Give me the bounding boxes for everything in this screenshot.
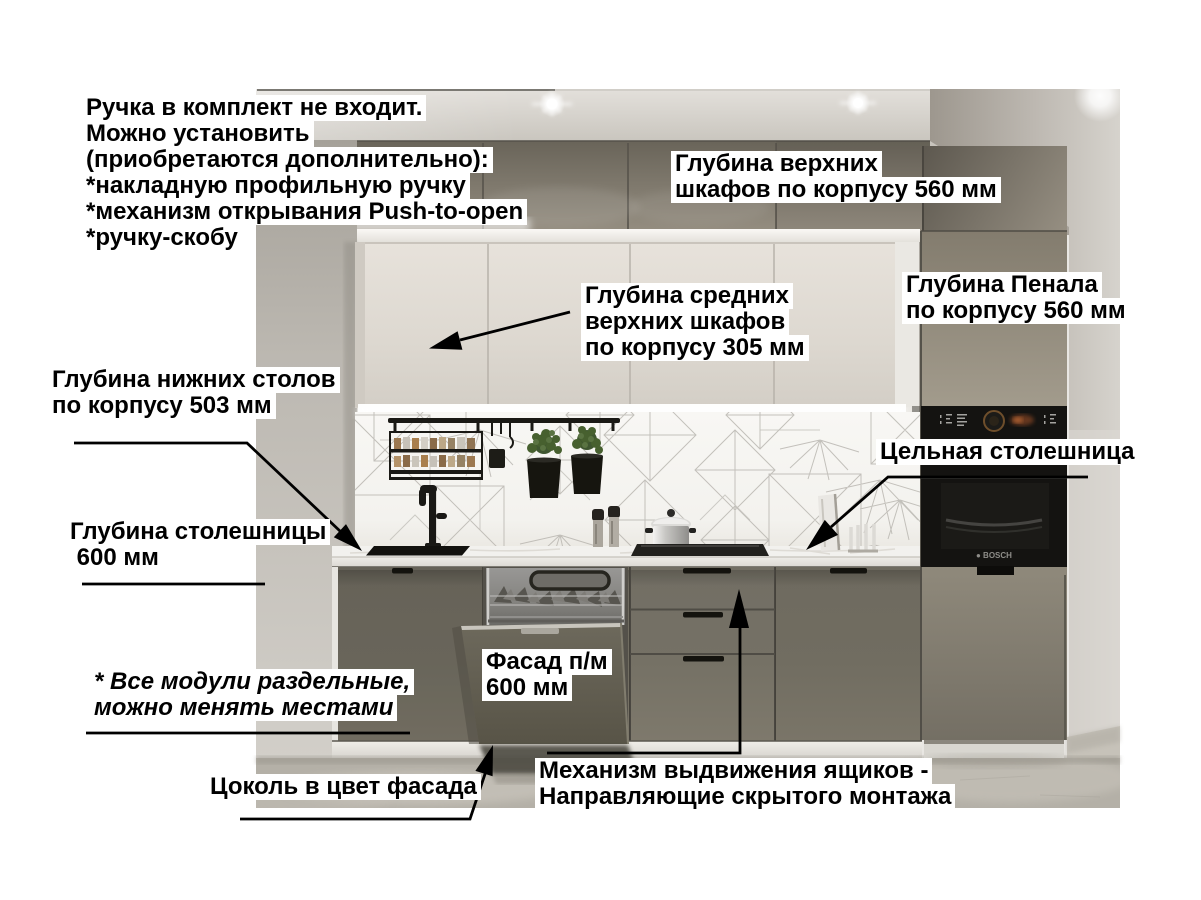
svg-text:● BOSCH: ● BOSCH (976, 551, 1012, 560)
